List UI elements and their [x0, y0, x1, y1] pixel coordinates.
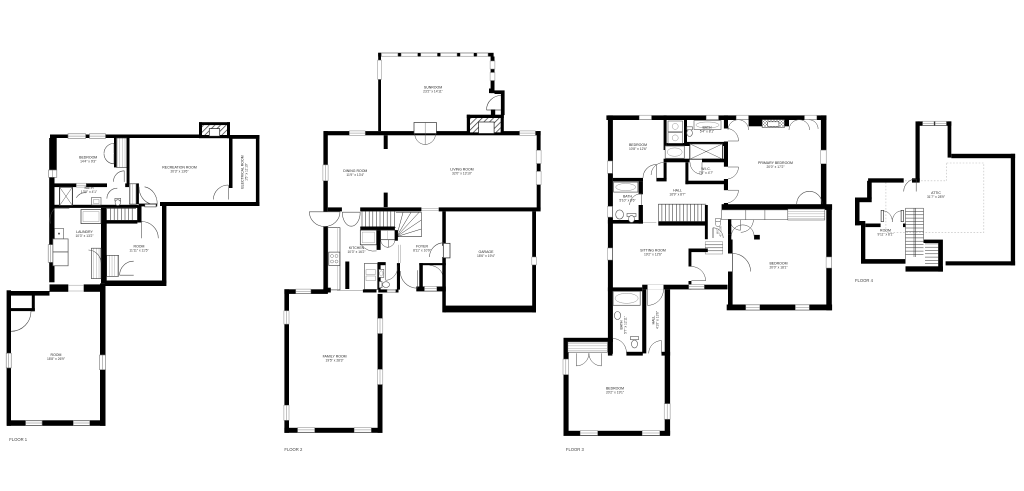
svg-text:31'7" x 28'9": 31'7" x 28'9"	[927, 195, 946, 199]
svg-text:11'11" x 11'5": 11'11" x 11'5"	[129, 249, 149, 253]
svg-text:18'6" x 19'4": 18'6" x 19'4"	[477, 254, 496, 258]
svg-text:18'8" x 26'9": 18'8" x 26'9"	[47, 357, 66, 361]
svg-text:13'8" x 4'1": 13'8" x 4'1"	[81, 190, 98, 194]
svg-text:10'3" x 16'2": 10'3" x 16'2"	[347, 250, 366, 254]
svg-text:1'5" x 11'10": 1'5" x 11'10"	[245, 162, 249, 181]
svg-text:32'0" x 13'10": 32'0" x 13'10"	[452, 172, 473, 176]
svg-text:FLOOR 1: FLOOR 1	[9, 437, 28, 442]
svg-text:19'5" x 28'3": 19'5" x 28'3"	[326, 359, 345, 363]
svg-text:23'2" x 14'11": 23'2" x 14'11"	[423, 90, 443, 94]
svg-text:10'3" x 13'2": 10'3" x 13'2"	[75, 234, 94, 238]
svg-text:FLOOR 3: FLOOR 3	[566, 447, 585, 452]
svg-text:FLOOR 4: FLOOR 4	[855, 278, 874, 283]
svg-text:11'9" x 13'4": 11'9" x 13'4"	[346, 173, 365, 177]
svg-text:10'8" x 12'6": 10'8" x 12'6"	[629, 147, 648, 151]
svg-text:9'11" x 8'1": 9'11" x 8'1"	[877, 233, 894, 237]
svg-text:14'4" x 9'3": 14'4" x 9'3"	[80, 160, 97, 164]
svg-text:4'10" x 13'6": 4'10" x 13'6"	[656, 310, 660, 329]
svg-text:4'7" x 5'6": 4'7" x 5'6"	[719, 225, 723, 236]
svg-text:5'10" x 9'6": 5'10" x 9'6"	[619, 199, 636, 203]
svg-text:20'2" x 19'1": 20'2" x 19'1"	[606, 391, 625, 395]
svg-text:20'0" x 18'1": 20'0" x 18'1"	[769, 266, 788, 270]
svg-text:5'7" x 12'11": 5'7" x 12'11"	[624, 315, 628, 334]
svg-text:20'3" x 13'6": 20'3" x 13'6"	[170, 169, 189, 173]
svg-text:20'0" x 17'2": 20'0" x 17'2"	[766, 165, 785, 169]
svg-text:8'11" x 10'9": 8'11" x 10'9"	[413, 249, 432, 253]
svg-text:16'9" x 8'7": 16'9" x 8'7"	[669, 193, 686, 197]
svg-text:19'2" x 12'6": 19'2" x 12'6"	[644, 253, 663, 257]
svg-text:5'4" x 8'1": 5'4" x 8'1"	[700, 130, 715, 134]
svg-text:FLOOR 2: FLOOR 2	[284, 447, 303, 452]
svg-text:7'0" x 4'7": 7'0" x 4'7"	[699, 171, 714, 175]
